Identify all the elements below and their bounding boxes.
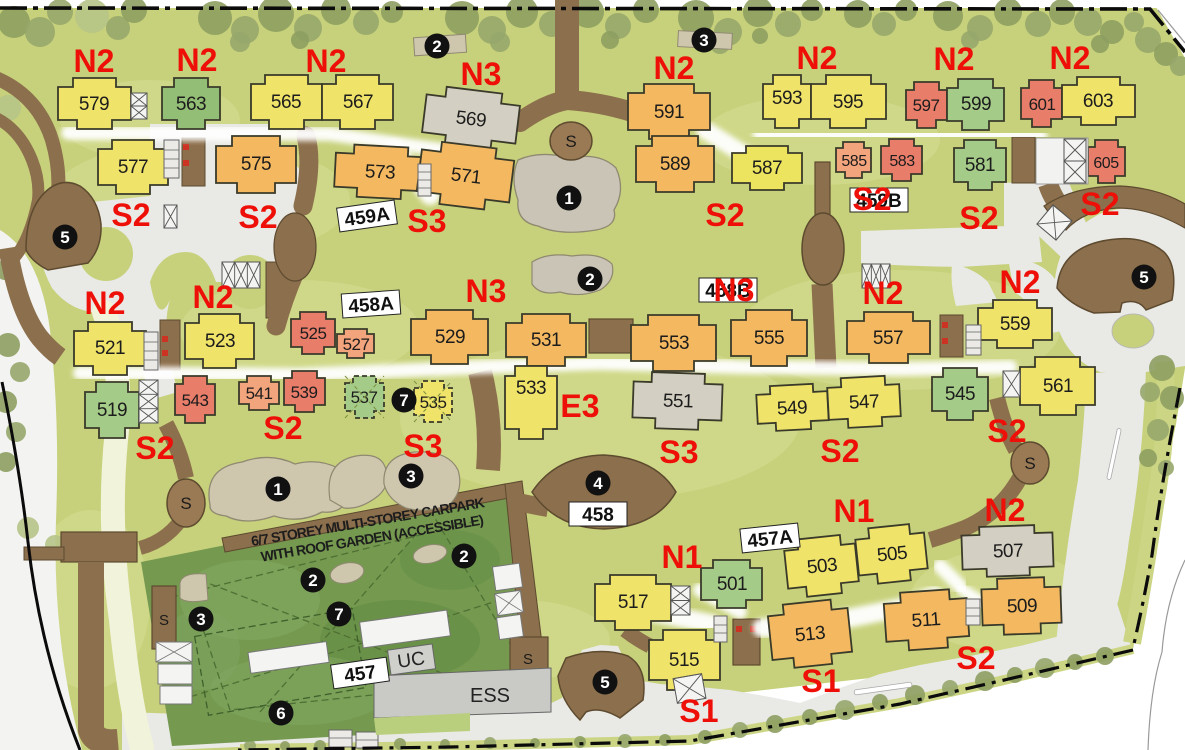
svg-text:553: 553 bbox=[659, 333, 689, 354]
svg-text:503: 503 bbox=[806, 554, 838, 578]
svg-text:4: 4 bbox=[593, 474, 603, 493]
svg-text:525: 525 bbox=[300, 324, 327, 343]
svg-text:501: 501 bbox=[717, 574, 747, 595]
svg-text:1: 1 bbox=[273, 480, 282, 499]
svg-text:S2: S2 bbox=[135, 430, 174, 466]
svg-text:2: 2 bbox=[585, 270, 594, 289]
svg-text:N1: N1 bbox=[662, 539, 703, 575]
svg-text:S1: S1 bbox=[801, 663, 840, 699]
svg-text:N2: N2 bbox=[74, 43, 115, 79]
svg-text:513: 513 bbox=[794, 622, 826, 646]
svg-text:S2: S2 bbox=[987, 413, 1026, 449]
svg-text:S: S bbox=[1024, 454, 1035, 473]
svg-text:599: 599 bbox=[961, 94, 991, 115]
svg-text:585: 585 bbox=[841, 153, 867, 170]
svg-text:535: 535 bbox=[420, 393, 447, 412]
svg-text:2: 2 bbox=[308, 571, 317, 590]
svg-text:N2: N2 bbox=[934, 41, 975, 77]
svg-text:591: 591 bbox=[654, 102, 684, 123]
svg-text:2: 2 bbox=[459, 547, 468, 566]
svg-text:458: 458 bbox=[582, 505, 614, 526]
svg-text:S3: S3 bbox=[659, 434, 698, 470]
svg-text:509: 509 bbox=[1007, 595, 1038, 617]
svg-text:N2: N2 bbox=[85, 285, 126, 321]
svg-text:507: 507 bbox=[993, 540, 1024, 562]
svg-text:N2: N2 bbox=[863, 275, 904, 311]
svg-text:N1: N1 bbox=[834, 493, 875, 529]
svg-text:S1: S1 bbox=[679, 693, 718, 729]
svg-text:563: 563 bbox=[176, 94, 206, 115]
svg-text:569: 569 bbox=[455, 107, 488, 132]
svg-text:545: 545 bbox=[945, 384, 975, 405]
svg-text:605: 605 bbox=[1093, 155, 1119, 172]
svg-text:S: S bbox=[523, 651, 533, 668]
svg-text:577: 577 bbox=[118, 157, 148, 178]
svg-text:547: 547 bbox=[848, 391, 879, 414]
svg-text:N2: N2 bbox=[177, 42, 218, 78]
svg-text:N3: N3 bbox=[714, 272, 755, 308]
svg-text:539: 539 bbox=[291, 383, 318, 402]
svg-text:5: 5 bbox=[600, 673, 609, 692]
svg-text:549: 549 bbox=[776, 397, 807, 420]
svg-text:587: 587 bbox=[752, 158, 782, 179]
svg-text:581: 581 bbox=[965, 155, 995, 176]
svg-text:521: 521 bbox=[95, 338, 125, 359]
svg-text:519: 519 bbox=[97, 400, 127, 421]
svg-text:531: 531 bbox=[531, 330, 561, 351]
svg-text:575: 575 bbox=[241, 154, 271, 175]
svg-text:N3: N3 bbox=[466, 273, 507, 309]
svg-text:7: 7 bbox=[399, 391, 408, 410]
svg-text:551: 551 bbox=[663, 390, 694, 412]
svg-text:579: 579 bbox=[79, 94, 109, 115]
svg-text:S2: S2 bbox=[820, 433, 859, 469]
svg-text:511: 511 bbox=[911, 609, 941, 632]
svg-text:N2: N2 bbox=[797, 40, 838, 76]
svg-text:583: 583 bbox=[889, 153, 915, 170]
svg-text:517: 517 bbox=[618, 592, 648, 613]
svg-text:571: 571 bbox=[450, 164, 483, 189]
svg-text:S3: S3 bbox=[407, 203, 446, 239]
svg-text:573: 573 bbox=[364, 161, 395, 184]
svg-text:555: 555 bbox=[754, 328, 784, 349]
svg-text:3: 3 bbox=[406, 467, 415, 486]
svg-text:S2: S2 bbox=[956, 640, 995, 676]
svg-text:S2: S2 bbox=[263, 410, 302, 446]
svg-text:533: 533 bbox=[516, 378, 546, 399]
svg-text:N2: N2 bbox=[985, 492, 1026, 528]
svg-text:S2: S2 bbox=[705, 197, 744, 233]
svg-text:595: 595 bbox=[833, 92, 863, 113]
svg-text:1: 1 bbox=[564, 189, 573, 208]
svg-text:UC: UC bbox=[396, 648, 426, 673]
svg-text:N2: N2 bbox=[654, 50, 695, 86]
svg-text:567: 567 bbox=[343, 92, 373, 113]
svg-text:S2: S2 bbox=[1080, 186, 1119, 222]
svg-text:601: 601 bbox=[1029, 95, 1056, 114]
svg-text:565: 565 bbox=[271, 92, 301, 113]
svg-text:559: 559 bbox=[1000, 314, 1030, 335]
svg-text:603: 603 bbox=[1083, 91, 1113, 112]
svg-text:S2: S2 bbox=[111, 197, 150, 233]
svg-text:3: 3 bbox=[196, 610, 205, 629]
svg-text:597: 597 bbox=[913, 96, 940, 115]
svg-text:S: S bbox=[180, 494, 191, 513]
svg-text:S2: S2 bbox=[959, 200, 998, 236]
svg-text:541: 541 bbox=[246, 384, 273, 403]
svg-text:6: 6 bbox=[276, 704, 285, 723]
svg-text:557: 557 bbox=[873, 328, 903, 349]
svg-text:N2: N2 bbox=[193, 279, 234, 315]
svg-text:543: 543 bbox=[182, 391, 209, 410]
svg-text:N3: N3 bbox=[461, 56, 502, 92]
svg-text:515: 515 bbox=[669, 650, 699, 671]
svg-text:458A: 458A bbox=[348, 293, 395, 317]
svg-text:S: S bbox=[159, 612, 169, 629]
svg-text:529: 529 bbox=[435, 327, 465, 348]
svg-text:2: 2 bbox=[432, 37, 441, 56]
svg-text:N2: N2 bbox=[1000, 264, 1041, 300]
svg-text:S2: S2 bbox=[238, 199, 277, 235]
svg-text:5: 5 bbox=[1139, 268, 1148, 287]
svg-text:589: 589 bbox=[660, 154, 690, 175]
svg-text:527: 527 bbox=[343, 335, 370, 354]
svg-text:N2: N2 bbox=[306, 43, 347, 79]
svg-text:537: 537 bbox=[351, 388, 378, 407]
svg-text:505: 505 bbox=[876, 542, 908, 566]
svg-text:S3: S3 bbox=[403, 428, 442, 464]
svg-text:523: 523 bbox=[205, 331, 235, 352]
svg-text:593: 593 bbox=[772, 88, 802, 109]
svg-text:S2: S2 bbox=[852, 181, 891, 217]
svg-text:457: 457 bbox=[343, 662, 377, 687]
svg-text:N2: N2 bbox=[1050, 40, 1091, 76]
svg-text:E3: E3 bbox=[560, 388, 599, 424]
svg-text:ESS: ESS bbox=[470, 685, 510, 707]
svg-text:5: 5 bbox=[60, 228, 69, 247]
svg-text:561: 561 bbox=[1043, 376, 1073, 397]
svg-text:3: 3 bbox=[699, 31, 708, 50]
svg-text:7: 7 bbox=[334, 605, 343, 624]
svg-text:S: S bbox=[565, 132, 576, 151]
